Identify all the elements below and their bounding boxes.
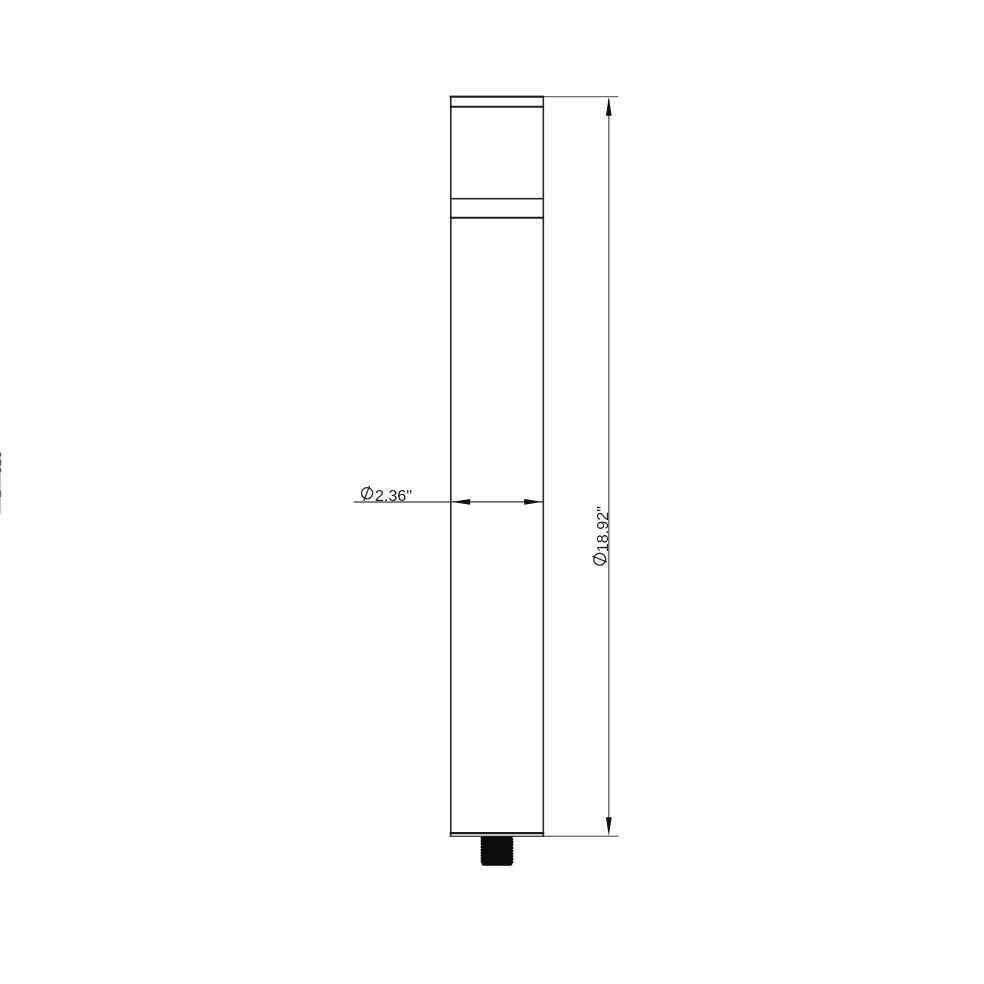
- svg-text:18.92": 18.92": [595, 506, 612, 552]
- svg-text:2.36": 2.36": [375, 488, 412, 505]
